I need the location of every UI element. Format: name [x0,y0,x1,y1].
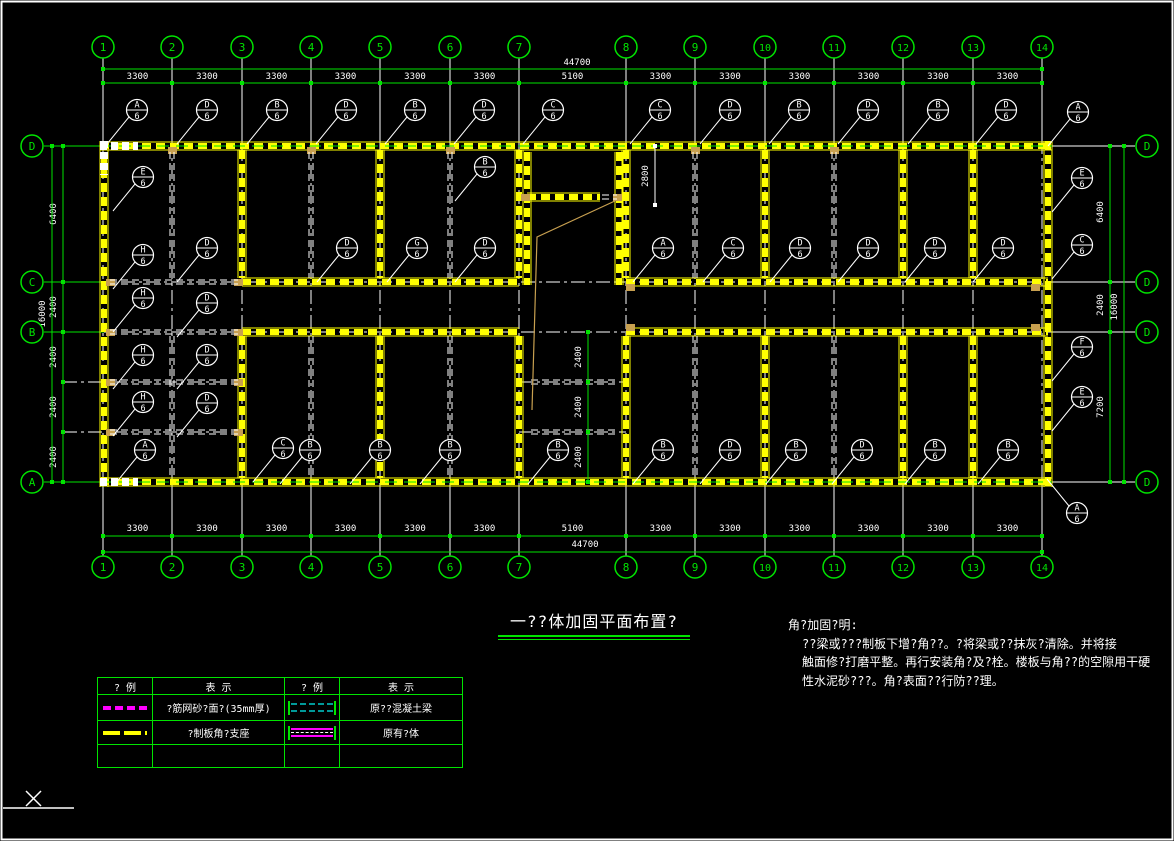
detail-callout: B6 [455,157,496,202]
callout-detail-letter: D [932,239,937,249]
detail-callout: D6 [838,100,879,145]
callout-detail-letter: D [204,394,209,404]
detail-callout: D6 [317,238,358,283]
dim-tick [448,534,452,538]
callout-detail-letter: A [142,441,147,451]
row-bubble-left-label: B [29,326,36,339]
detail-callout: B6 [247,100,288,145]
callout-sheet-number: 6 [204,405,209,415]
row-bubble-left-label: D [29,140,36,153]
dim-tick [50,480,54,484]
column-bubble-top-label: 10 [759,43,771,54]
column-bubble-top-label: 9 [692,41,699,54]
dim-tick [1122,144,1126,148]
legend-label: ?制板角?支座 [153,721,285,745]
column-bubble-top-label: 12 [897,43,909,54]
column-bubble-bottom-label: 14 [1036,563,1048,574]
callout-sheet-number: 6 [343,112,348,122]
callout-leader [177,410,199,437]
callout-sheet-number: 6 [140,357,145,367]
dim-tick [901,81,905,85]
dim-tick [971,81,975,85]
column-bubble-top-label: 14 [1036,43,1048,54]
drawing-title-block: 一??体加固平面布置? [498,608,690,640]
callout-sheet-number: 6 [550,112,555,122]
callout-layer: A6D6B6D6B6D6C6C6D6B6D6B6D6A6E6H6D6H6D6H6… [107,100,1093,526]
dim-tick [1108,480,1112,484]
beam-pocket [691,147,700,154]
callout-detail-letter: A [1074,504,1079,514]
column-bubble-top-label: 3 [239,41,246,54]
dim-segment-top: 3300 [650,72,672,82]
callout-detail-letter: C [280,439,285,449]
callout-sheet-number: 6 [555,452,560,462]
dim-tick [61,330,65,334]
column-bubble-bottom-label: 3 [239,561,246,574]
dim-segment-bottom: 3300 [127,524,149,534]
callout-sheet-number: 6 [482,169,487,179]
beam-layer [110,152,836,478]
dim-tick [693,534,697,538]
callout-detail-letter: B [555,441,560,451]
callout-detail-letter: A [134,101,139,111]
callout-leader [1052,354,1074,381]
column-bubble-bottom-label: 7 [516,561,523,574]
dim-tick [517,534,521,538]
dim-tick [586,430,590,434]
callout-sheet-number: 6 [481,112,486,122]
row-bubble-left-label: C [29,276,36,289]
detail-callout: D6 [838,238,879,283]
dim-segment-top: 3300 [858,72,880,82]
beam-pocket [168,147,177,154]
axis-bubble-layer: 11223344556677889910101111121213131414DC… [21,36,1158,578]
dim-tick [832,81,836,85]
callout-sheet-number: 6 [657,112,662,122]
dim-tick [101,67,105,71]
dim-segment-left: 2400 [49,346,59,368]
row-bubble-right-label: D [1144,326,1151,339]
beam-pocket [626,284,635,291]
beam-pocket [830,147,839,154]
column-bubble-top-label: 1 [100,41,107,54]
dim-tick [61,144,65,148]
legend-label: 原有?体 [340,721,462,745]
callout-sheet-number: 6 [865,250,870,260]
detail-callout: B6 [528,440,569,485]
legend-empty-cell [340,745,462,767]
callout-sheet-number: 6 [730,250,735,260]
dim-tick [378,81,382,85]
detail-callout: H6 [113,288,154,333]
dim-segment-bottom: 3300 [997,524,1019,534]
callout-leader [769,117,791,144]
callout-detail-letter: H [140,393,145,403]
dim-segment-bottom: 3300 [927,524,949,534]
detail-callout: E6 [1052,387,1093,432]
dim-tick [61,430,65,434]
column-bubble-bottom-label: 11 [828,563,840,574]
callout-leader [177,117,199,144]
callout-sheet-number: 6 [660,452,665,462]
callout-detail-letter: D [727,101,732,111]
beam-pocket [307,147,316,154]
callout-leader [976,117,998,144]
notes-line: 触面修?打磨平整。再行安装角?及?栓。楼板与角??的空隙用干硬 [788,653,1174,672]
row-bubble-right-label: D [1144,140,1151,153]
detail-callout: C6 [703,238,744,283]
dim-tick [101,534,105,538]
callout-sheet-number: 6 [344,250,349,260]
detail-callout: D6 [700,100,741,145]
detail-callout: D6 [905,238,946,283]
dim-tick [517,81,521,85]
callout-detail-letter: B [482,158,487,168]
callout-detail-letter: C [730,239,735,249]
detail-callout: H6 [113,392,154,437]
dim-tick [240,81,244,85]
dim-tick [378,534,382,538]
callout-sheet-number: 6 [1079,399,1084,409]
detail-callout: A6 [633,238,674,283]
dim-tick [586,330,590,334]
column-bubble-top-label: 7 [516,41,523,54]
column-bubble-bottom-label: 10 [759,563,771,574]
callout-detail-letter: H [140,346,145,356]
row-bubble-right-label: D [1144,276,1151,289]
column-bubble-top-label: 5 [377,41,384,54]
callout-leader [385,117,407,144]
title-underline [498,635,690,637]
detail-callout: D6 [832,440,873,485]
callout-leader [908,117,930,144]
detail-callout: B6 [766,440,807,485]
callout-leader [1052,404,1074,431]
callout-sheet-number: 6 [204,250,209,260]
dim-tick [653,144,657,148]
detail-callout: D6 [700,440,741,485]
column-bubble-bottom-label: 2 [169,561,176,574]
dim-segment-right: 2400 [1096,294,1106,316]
detail-callout: A6 [107,100,148,145]
callout-sheet-number: 6 [204,357,209,367]
dim-tick [1108,144,1112,148]
dim-segment-top: 3300 [927,72,949,82]
callout-sheet-number: 6 [1075,114,1080,124]
column-bubble-top-label: 6 [447,41,454,54]
dim-tick [763,534,767,538]
stair-leader-line [532,200,617,410]
callout-sheet-number: 6 [140,257,145,267]
dim-tick [624,81,628,85]
dim-tick [971,534,975,538]
callout-detail-letter: E [140,168,145,178]
dim-segment-bottom: 3300 [196,524,218,534]
dim-segment-left: 2400 [49,446,59,468]
dim-tick [101,550,105,554]
dim-tick [901,534,905,538]
detail-callout: B6 [385,100,426,145]
callout-leader [630,117,652,144]
detail-callout: D6 [976,100,1017,145]
dim-tick [170,534,174,538]
callout-detail-letter: B [796,101,801,111]
beam-pocket [521,194,530,201]
dim-segment-top: 3300 [997,72,1019,82]
row-bubble-right-label: D [1144,476,1151,489]
legend-header: 表 示 [340,678,462,695]
callout-sheet-number: 6 [660,250,665,260]
detail-callout: B6 [769,100,810,145]
callout-leader [700,117,722,144]
detail-callout: B6 [908,100,949,145]
detail-callout: D6 [454,100,495,145]
dim-tick [61,480,65,484]
dim-tick [1108,280,1112,284]
dim-segment-top: 3300 [719,72,741,82]
callout-sheet-number: 6 [859,452,864,462]
callout-detail-letter: D [204,346,209,356]
legend-header: ? 例 [285,678,340,695]
column-bubble-bottom-label: 4 [308,561,315,574]
dim-segment-interior: 2400 [574,396,584,418]
callout-leader [1048,119,1070,146]
detail-callout: G6 [387,238,428,283]
callout-sheet-number: 6 [1000,250,1005,260]
callout-detail-letter: C [1079,236,1084,246]
column-bubble-top-label: 8 [623,41,630,54]
dim-total-top: 44700 [563,58,590,68]
dim-segment-interior: 2400 [574,346,584,368]
reinforcement-notes: 角?加固?明: ??梁或???制板下增?角??。?将梁或??抹灰?清除。并将接 … [788,616,1174,690]
callout-leader [113,305,135,332]
callout-sheet-number: 6 [1003,112,1008,122]
beam-pocket [626,324,635,331]
column-bubble-bottom-label: 1 [100,561,107,574]
callout-sheet-number: 6 [1005,452,1010,462]
dim-tick [1040,534,1044,538]
dim-segment-bottom: 3300 [789,524,811,534]
detail-callout: F6 [1052,337,1093,382]
callout-sheet-number: 6 [727,112,732,122]
dim-segment-bottom: 5100 [562,524,584,534]
legend-table: ? 例 表 示 ? 例 表 示 ?筋网砂?面?(35mm厚) 原??混凝土梁 ?… [97,677,463,768]
callout-detail-letter: D [727,441,732,451]
detail-callout: A6 [1047,479,1088,525]
callout-sheet-number: 6 [932,452,937,462]
detail-callout: D6 [177,100,218,145]
dim-segment-interior: 2400 [574,446,584,468]
dim-segment-bottom: 3300 [719,524,741,534]
dim-tick [1040,67,1044,71]
callout-detail-letter: D [204,294,209,304]
callout-detail-letter: D [204,239,209,249]
callout-leader [113,362,135,389]
callout-leader [1047,479,1069,506]
dim-tick [50,144,54,148]
beam-pocket [1031,284,1040,291]
callout-detail-letter: D [343,101,348,111]
column-bubble-bottom-label: 9 [692,561,699,574]
dim-tick [653,203,657,207]
dim-tick [1122,480,1126,484]
callout-detail-letter: B [377,441,382,451]
detail-callout: B6 [978,440,1019,485]
callout-detail-letter: D [344,239,349,249]
column-bubble-top-label: 13 [967,43,979,54]
callout-leader [247,117,269,144]
callout-detail-letter: B [935,101,940,111]
callout-detail-letter: F [1079,338,1084,348]
callout-detail-letter: D [481,101,486,111]
legend-header: 表 示 [153,678,285,695]
notes-line: 性水泥砂???。角?表面??行防??理。 [788,672,1174,691]
callout-detail-letter: C [657,101,662,111]
callout-sheet-number: 6 [935,112,940,122]
callout-detail-letter: D [1000,239,1005,249]
detail-callout: A6 [1048,102,1089,147]
legend-label: ?筋网砂?面?(35mm厚) [153,695,285,721]
callout-detail-letter: B [1005,441,1010,451]
callout-sheet-number: 6 [1079,349,1084,359]
dim-segment-bottom: 3300 [650,524,672,534]
callout-leader [455,174,477,201]
callout-sheet-number: 6 [797,250,802,260]
callout-leader [113,184,135,211]
callout-leader [838,117,860,144]
detail-callout: C6 [1052,235,1093,280]
callout-sheet-number: 6 [482,250,487,260]
callout-detail-letter: D [482,239,487,249]
wall-layer [100,141,1052,487]
callout-sheet-number: 6 [140,300,145,310]
legend-empty-cell [153,745,285,767]
dim-tick [624,534,628,538]
callout-detail-letter: D [859,441,864,451]
column-bubble-bottom-label: 13 [967,563,979,574]
column-bubble-top-label: 4 [308,41,315,54]
dim-tick [832,534,836,538]
dim-tick [586,380,590,384]
column-bubble-top-label: 11 [828,43,840,54]
callout-detail-letter: D [797,239,802,249]
dim-segment-left: 6400 [49,203,59,225]
dim-segment-top: 3300 [266,72,288,82]
callout-leader [177,362,199,389]
dim-tick [170,81,174,85]
legend-label: 原??混凝土梁 [340,695,462,721]
cad-viewport: 4470033003300330033003300330051003300330… [0,0,1174,841]
dim-tick [693,81,697,85]
callout-sheet-number: 6 [280,450,285,460]
detail-callout: B6 [905,440,946,485]
dim-tick [309,534,313,538]
callout-detail-letter: D [865,239,870,249]
drawing-title: 一??体加固平面布置? [498,608,690,632]
dim-total-right: 16000 [1110,293,1120,320]
dim-tick [101,81,105,85]
callout-detail-letter: B [932,441,937,451]
legend-symbol-existing-beam [285,695,340,721]
callout-sheet-number: 6 [1079,247,1084,257]
dim-segment-left: 2400 [49,396,59,418]
column-bubble-bottom-label: 12 [897,563,909,574]
dim-tick [1040,550,1044,554]
callout-leader [1052,185,1074,212]
callout-detail-letter: B [447,441,452,451]
notes-line: ??梁或???制板下增?角??。?将梁或??抹灰?清除。并将接 [788,635,1174,654]
callout-detail-letter: H [140,246,145,256]
title-underline-2 [498,639,690,640]
callout-sheet-number: 6 [307,452,312,462]
callout-sheet-number: 6 [377,452,382,462]
callout-sheet-number: 6 [447,452,452,462]
callout-detail-letter: E [1079,388,1084,398]
dim-segment-bottom: 3300 [335,524,357,534]
detail-callout: D6 [316,100,357,145]
detail-callout: B6 [420,440,461,485]
detail-callout: D6 [455,238,496,283]
callout-sheet-number: 6 [1079,180,1084,190]
detail-callout: D6 [177,238,218,283]
callout-detail-letter: C [550,101,555,111]
callout-detail-letter: H [140,289,145,299]
callout-sheet-number: 6 [134,112,139,122]
column-bubble-bottom-label: 5 [377,561,384,574]
dim-segment-top: 3300 [196,72,218,82]
callout-sheet-number: 6 [412,112,417,122]
callout-leader [454,117,476,144]
dim-segment-left: 2400 [49,296,59,318]
row-bubble-left-label: A [29,476,36,489]
dim-segment-top: 3300 [474,72,496,82]
column-bubble-bottom-label: 8 [623,561,630,574]
dim-tick [763,81,767,85]
callout-detail-letter: B [412,101,417,111]
callout-leader [316,117,338,144]
callout-sheet-number: 6 [793,452,798,462]
dim-segment-top: 3300 [127,72,149,82]
detail-callout: D6 [770,238,811,283]
callout-sheet-number: 6 [140,404,145,414]
callout-detail-letter: D [865,101,870,111]
dim-segment-top: 3300 [335,72,357,82]
callout-detail-letter: B [307,441,312,451]
detail-callout: C6 [630,100,671,145]
callout-sheet-number: 6 [1074,515,1079,525]
callout-leader [113,262,135,289]
detail-callout: E6 [113,167,154,212]
callout-detail-letter: E [1079,169,1084,179]
dim-tick [240,534,244,538]
callout-leader [1052,252,1074,279]
callout-detail-letter: D [204,101,209,111]
legend-symbol-existing-wall [285,721,340,745]
legend-symbol-steel-mesh [98,695,153,721]
dim-tick [61,380,65,384]
dim-segment-top: 3300 [404,72,426,82]
callout-sheet-number: 6 [274,112,279,122]
dim-segment-right: 7200 [1096,396,1106,418]
detail-callout: E6 [1052,168,1093,213]
dim-tick [1108,330,1112,334]
detail-callout: D6 [973,238,1014,283]
dim-stair: 2800 [641,165,651,187]
dim-tick [448,81,452,85]
callout-sheet-number: 6 [204,305,209,315]
callout-sheet-number: 6 [204,112,209,122]
beam-pocket [446,147,455,154]
